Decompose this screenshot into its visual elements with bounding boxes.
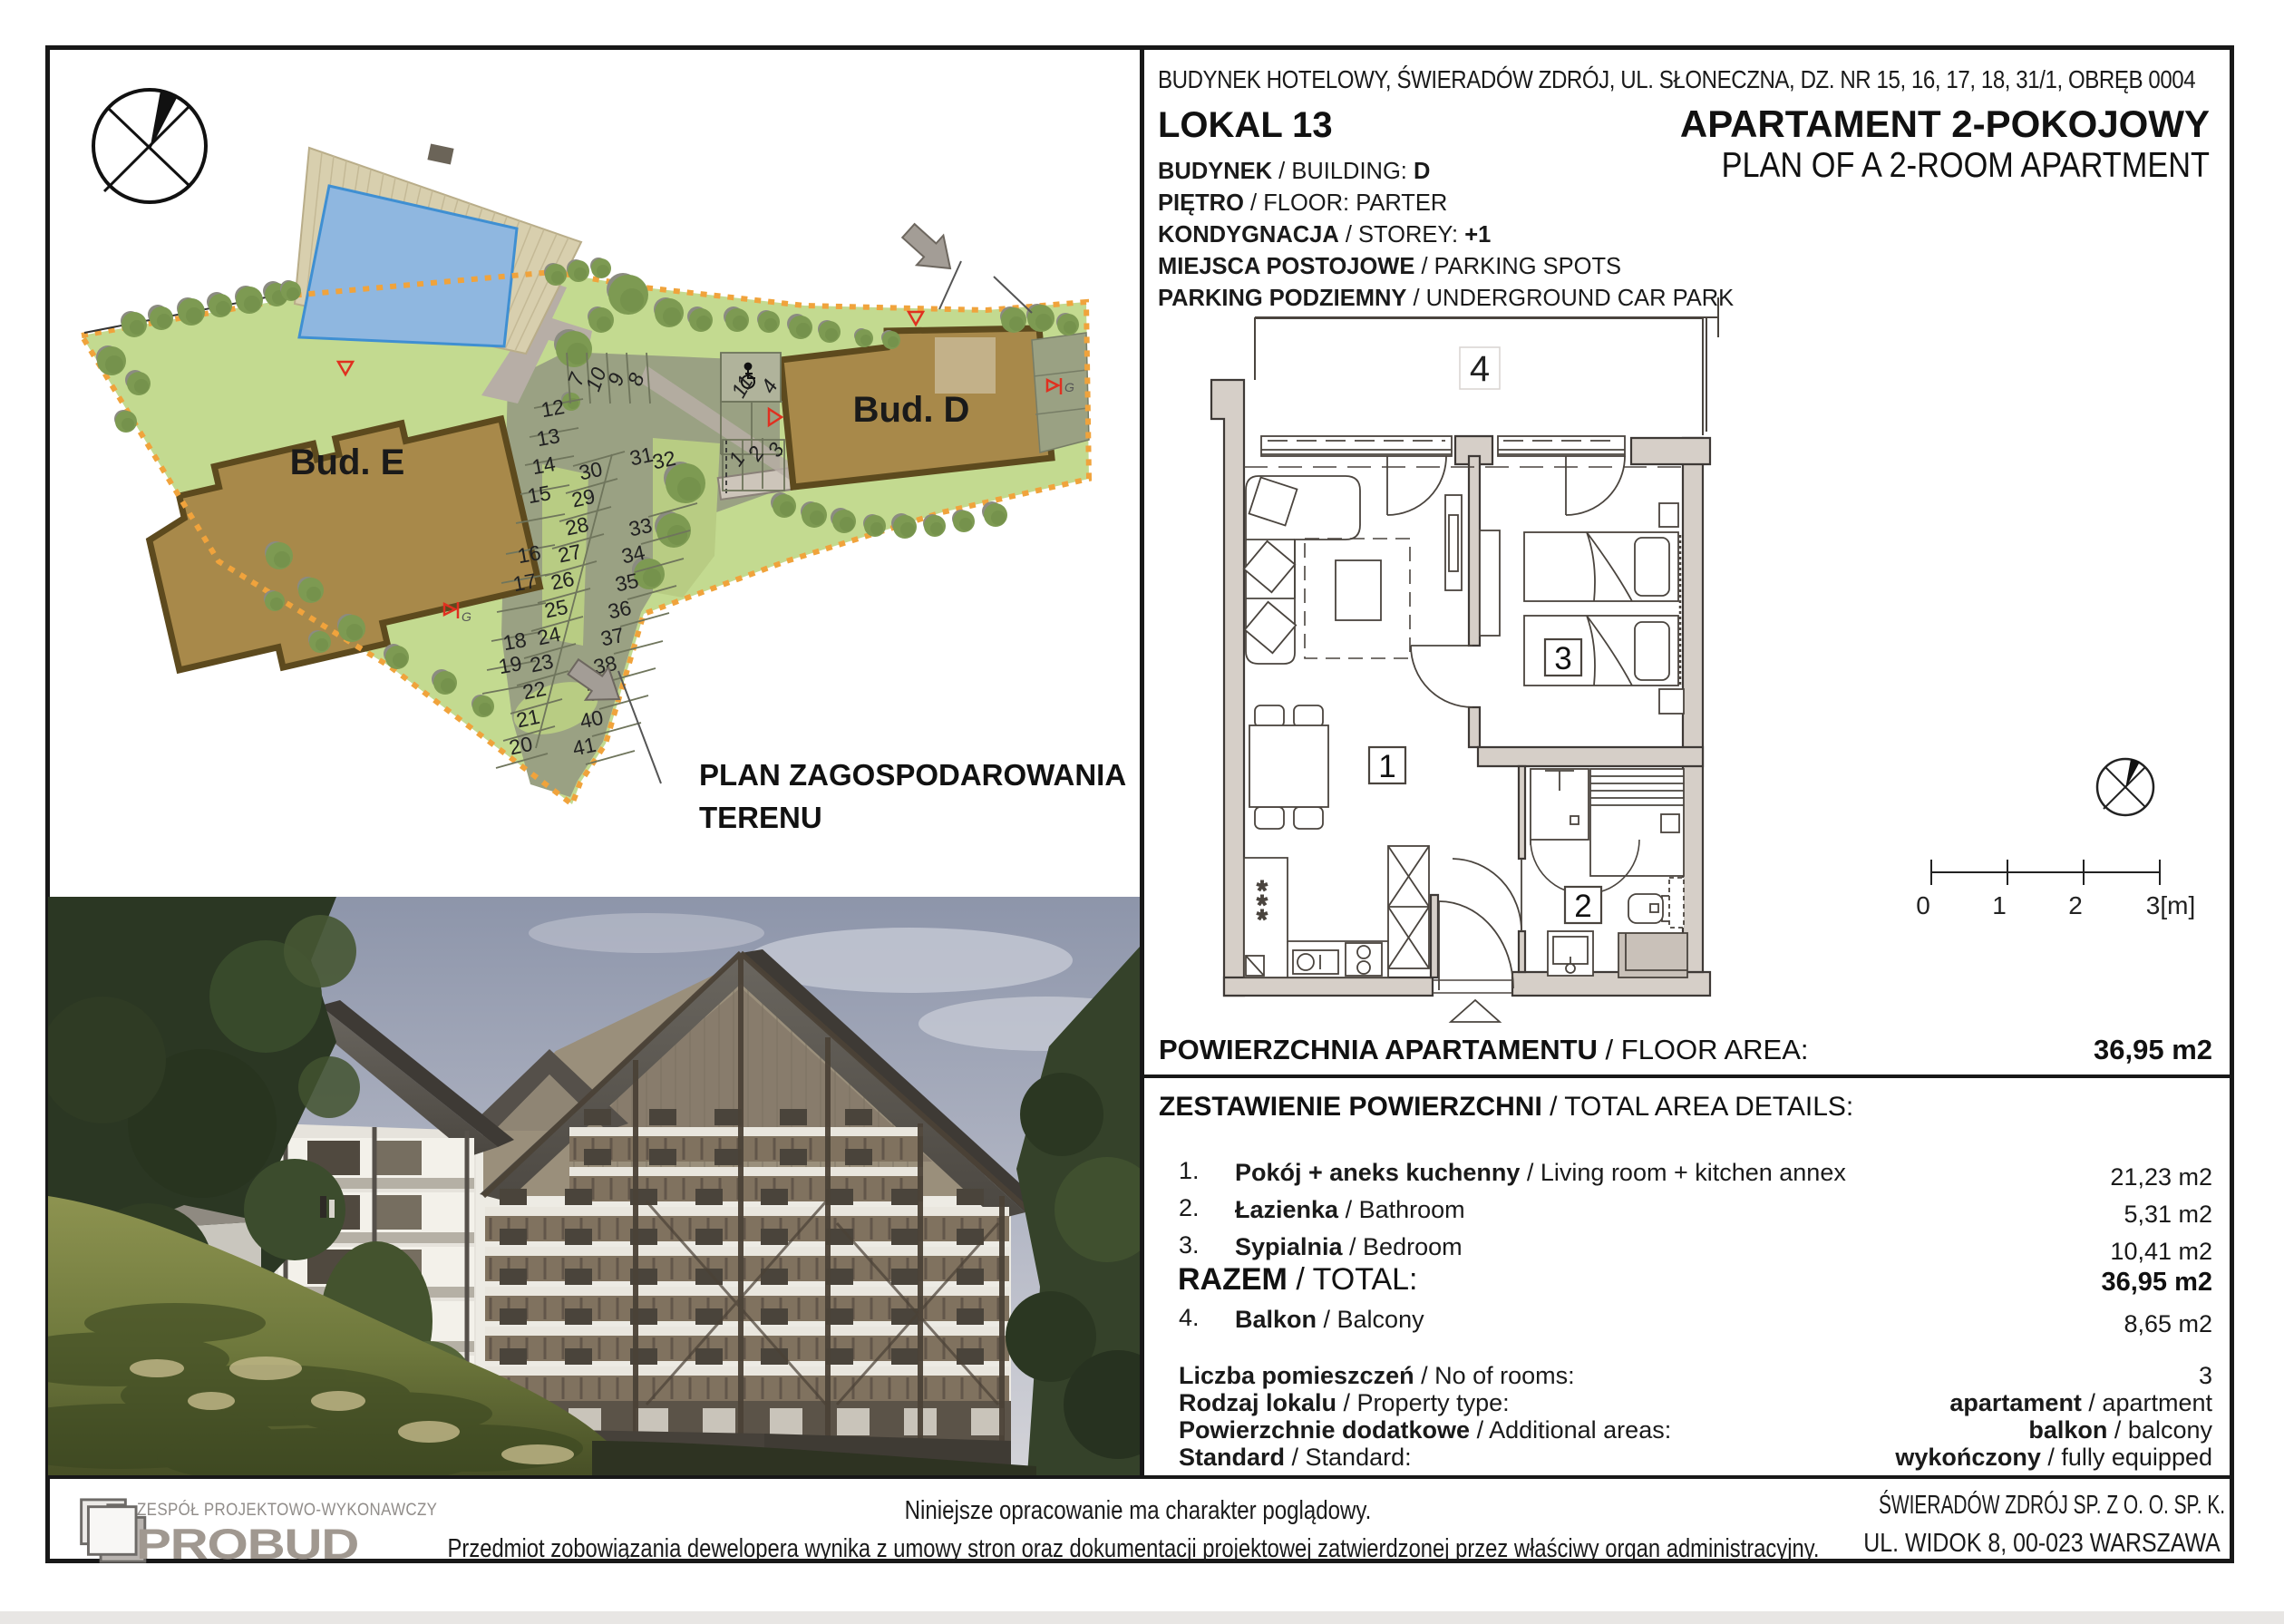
svg-text:0: 0 — [1916, 891, 1930, 919]
svg-text:G: G — [1064, 380, 1074, 394]
svg-text:23: 23 — [528, 649, 555, 677]
svg-text:40: 40 — [578, 705, 605, 734]
svg-text:19: 19 — [497, 651, 524, 678]
svg-text:2: 2 — [2068, 891, 2083, 919]
svg-text:13: 13 — [535, 423, 562, 451]
svg-text:3: 3 — [1554, 641, 1571, 676]
svg-text:Bud. D: Bud. D — [853, 390, 970, 430]
svg-text:41: 41 — [570, 733, 598, 761]
svg-text:4: 4 — [1470, 349, 1490, 389]
svg-text:30: 30 — [577, 457, 604, 485]
svg-text:*: * — [1257, 905, 1268, 935]
svg-text:15: 15 — [526, 481, 553, 508]
svg-text:PLAN ZAGOSPODAROWANIA: PLAN ZAGOSPODAROWANIA — [699, 758, 1126, 792]
svg-text:1: 1 — [1992, 891, 2007, 919]
svg-text:21: 21 — [514, 705, 541, 733]
svg-text:26: 26 — [549, 567, 576, 595]
svg-text:1: 1 — [1378, 749, 1395, 784]
svg-text:33: 33 — [627, 513, 654, 541]
svg-text:28: 28 — [563, 512, 590, 540]
svg-text:12: 12 — [539, 394, 567, 422]
svg-text:2: 2 — [1574, 889, 1591, 924]
svg-text:25: 25 — [542, 595, 569, 623]
svg-text:35: 35 — [613, 569, 640, 597]
svg-text:27: 27 — [556, 540, 583, 568]
svg-text:G: G — [462, 609, 471, 624]
svg-text:29: 29 — [569, 484, 597, 512]
svg-text:14: 14 — [530, 452, 558, 479]
svg-text:20: 20 — [507, 732, 534, 760]
svg-text:22: 22 — [520, 676, 548, 705]
svg-text:37: 37 — [598, 623, 626, 651]
svg-text:TERENU: TERENU — [699, 801, 822, 834]
svg-text:36: 36 — [606, 596, 633, 624]
svg-text:3[m]: 3[m] — [2146, 891, 2195, 919]
svg-text:17: 17 — [511, 569, 539, 596]
svg-text:16: 16 — [516, 540, 543, 568]
svg-text:32: 32 — [650, 446, 677, 474]
svg-text:18: 18 — [501, 627, 529, 655]
svg-text:Bud. E: Bud. E — [290, 442, 405, 482]
